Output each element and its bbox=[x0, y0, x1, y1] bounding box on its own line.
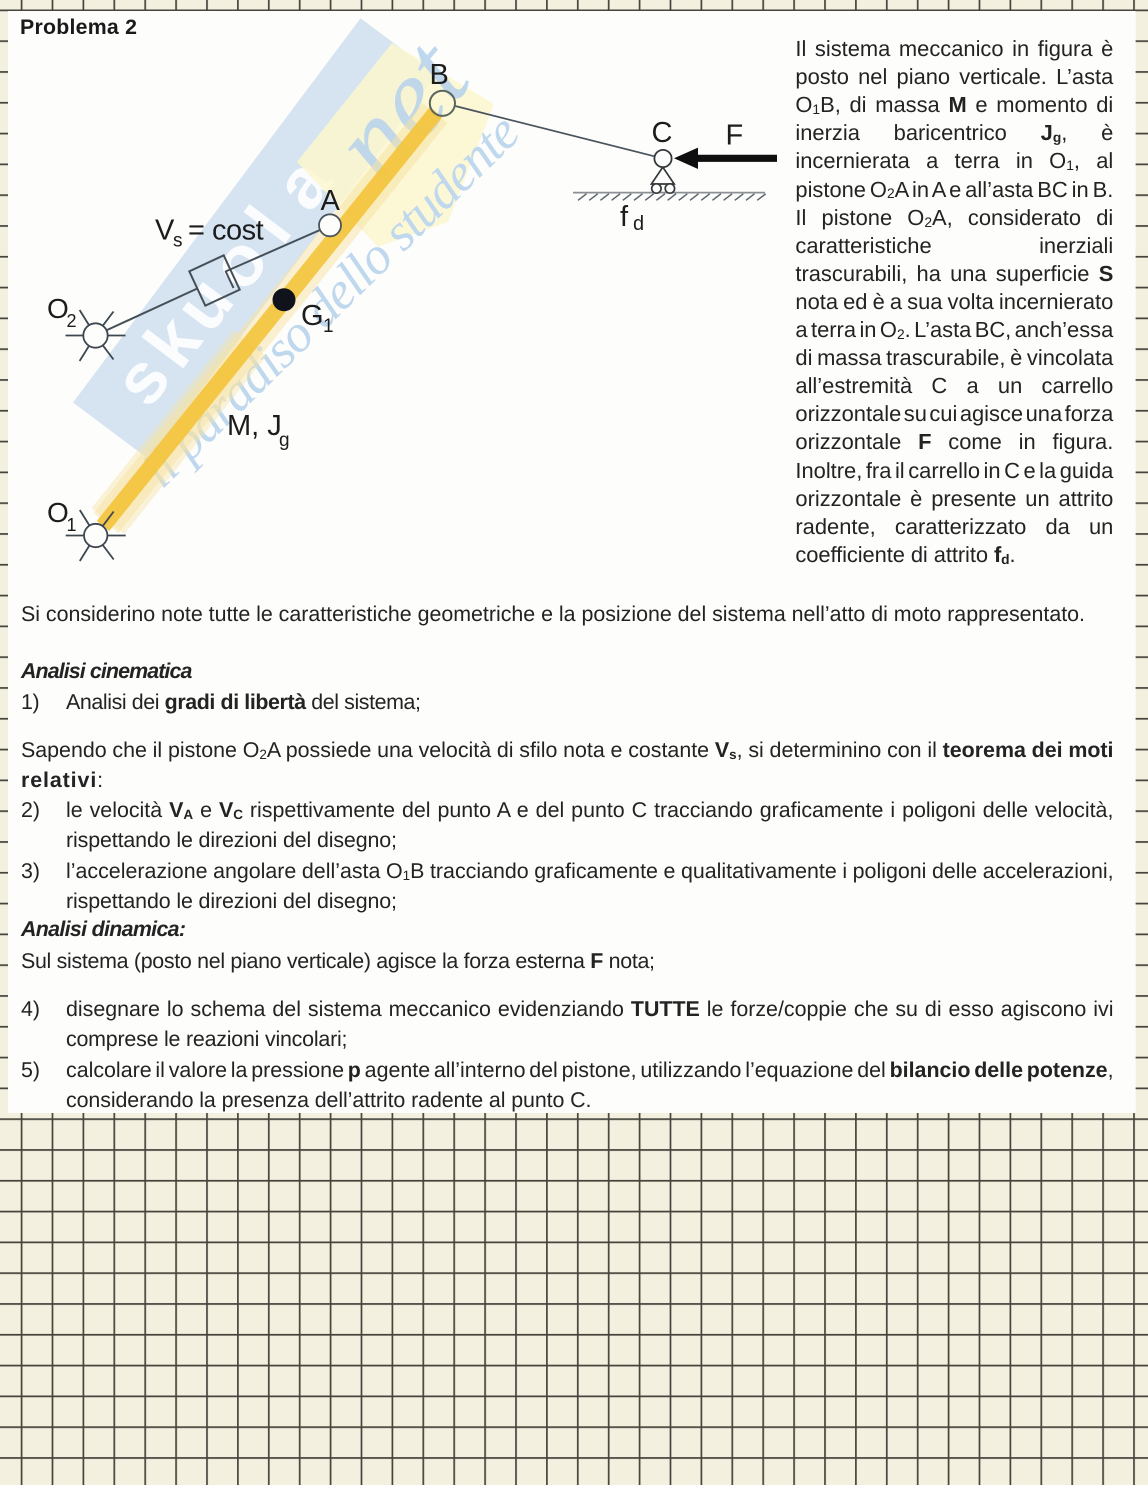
svg-text:s: s bbox=[173, 231, 183, 252]
svg-text:M, J: M, J bbox=[227, 410, 282, 442]
svg-text:B: B bbox=[430, 59, 449, 91]
svg-text:O: O bbox=[47, 293, 69, 324]
svg-text:d: d bbox=[633, 213, 644, 235]
svg-text:A: A bbox=[321, 185, 341, 217]
svg-text:g: g bbox=[279, 430, 290, 451]
svg-text:2: 2 bbox=[67, 311, 77, 331]
svg-text:f: f bbox=[620, 201, 629, 233]
svg-text:1: 1 bbox=[323, 316, 334, 337]
svg-text:F: F bbox=[726, 120, 744, 152]
svg-text:C: C bbox=[652, 117, 673, 149]
svg-text:= cost: = cost bbox=[188, 215, 264, 247]
svg-text:O: O bbox=[47, 497, 69, 528]
svg-text:1: 1 bbox=[67, 515, 77, 535]
svg-text:V: V bbox=[155, 215, 175, 247]
svg-text:G: G bbox=[301, 300, 324, 332]
